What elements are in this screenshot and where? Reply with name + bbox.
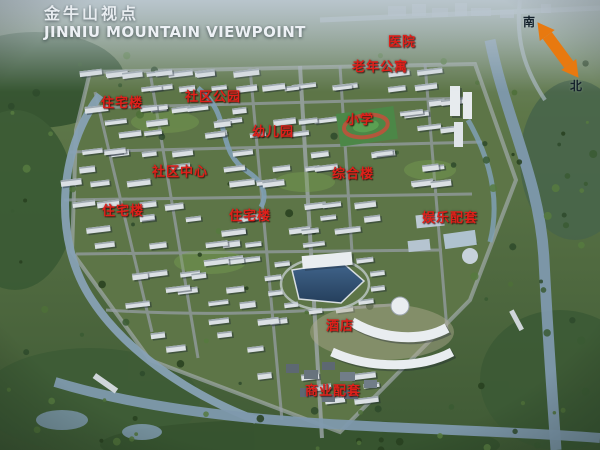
map-label-complex-building: 综合楼: [332, 163, 374, 182]
map-label-primary-school: 小学: [346, 109, 374, 128]
vignette: [0, 0, 600, 450]
viewpoint-title: 金牛山视点 JINNIU MOUNTAIN VIEWPOINT: [44, 5, 306, 42]
map-label-residential-2: 住宅楼: [102, 200, 144, 219]
map-label-entertainment-facilities: 娱乐配套: [422, 207, 478, 226]
map-label-senior-apartments: 老年公寓: [352, 56, 408, 75]
map-label-kindergarten: 幼儿园: [252, 121, 294, 140]
title-english: JINNIU MOUNTAIN VIEWPOINT: [44, 24, 306, 42]
title-chinese: 金牛山视点: [44, 5, 306, 24]
aerial-masterplan-image: 金牛山视点 JINNIU MOUNTAIN VIEWPOINT 南 北 医院老年…: [0, 0, 600, 450]
map-label-community-park: 社区公园: [185, 86, 241, 105]
aerial-map-rendering: [0, 0, 600, 450]
map-label-hospital: 医院: [388, 31, 416, 50]
map-label-hotel: 酒店: [326, 315, 354, 334]
map-label-commercial-facilities: 商业配套: [305, 380, 361, 399]
map-label-residential-3: 住宅楼: [229, 205, 271, 224]
compass: 南 北: [522, 8, 588, 96]
compass-north-label: 北: [570, 77, 582, 94]
map-label-community-center: 社区中心: [152, 161, 208, 180]
compass-arrow-icon: [526, 14, 590, 86]
map-label-residential-1: 住宅楼: [101, 92, 143, 111]
